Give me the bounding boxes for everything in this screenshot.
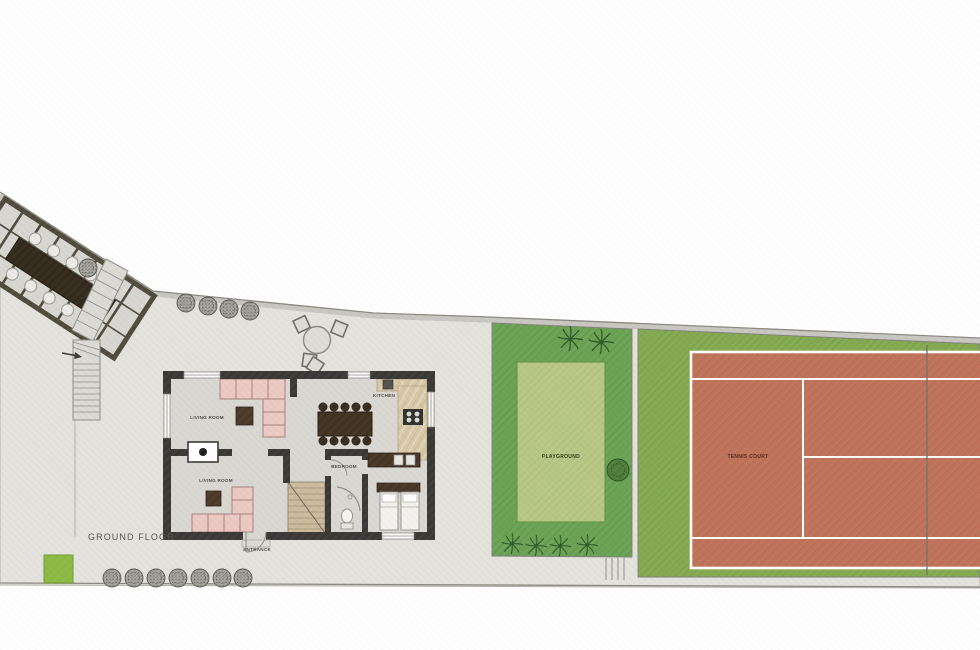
terrace-table [304,327,331,354]
playground-label: PLAYGROUND [542,454,580,460]
living-room-lower-label: LIVING ROOM [199,478,233,483]
appliance [406,455,415,465]
window [184,372,220,378]
window [382,533,414,539]
window [348,372,370,378]
bed-1 [380,492,398,530]
site-plan-canvas: PLAYGROUND TENNIS COURT [0,0,980,650]
bathroom-west-wall [325,476,331,532]
kitchen-label: KITCHEN [373,393,396,398]
tennis-court: TENNIS COURT [691,345,980,575]
grass-patch [44,555,73,583]
site-plan-drawing: PLAYGROUND TENNIS COURT [0,0,980,650]
toilet [341,509,353,529]
ground-floor-title: GROUND FLOOR [88,532,175,542]
entrance-label: ENTRANCE [243,547,271,552]
kitchen-sink [383,380,393,389]
fireplace [188,442,218,462]
coffee-table [236,407,253,425]
bedroom-label: BEDROOM [331,464,357,469]
bathroom-east-wall [362,474,368,532]
headboard [377,483,420,492]
dining-set [318,403,372,445]
wall-stub-stairs [283,453,290,483]
interior-staircase [288,482,325,533]
stove [403,409,423,425]
dining-table [318,412,372,436]
window [164,394,170,438]
side-table [206,491,221,506]
playground-area [517,362,605,522]
bathroom-north-wall [325,449,368,456]
tennis-court-label: TENNIS COURT [727,454,768,460]
living-room-upper-label: LIVING ROOM [190,415,224,420]
bed-2 [401,492,419,530]
bush [607,459,629,481]
window [428,392,434,427]
appliance [394,455,403,465]
wall-stub-top [290,379,297,397]
house: LIVING ROOM LIVING ROOM KITCHEN BEDROOM … [163,371,435,552]
